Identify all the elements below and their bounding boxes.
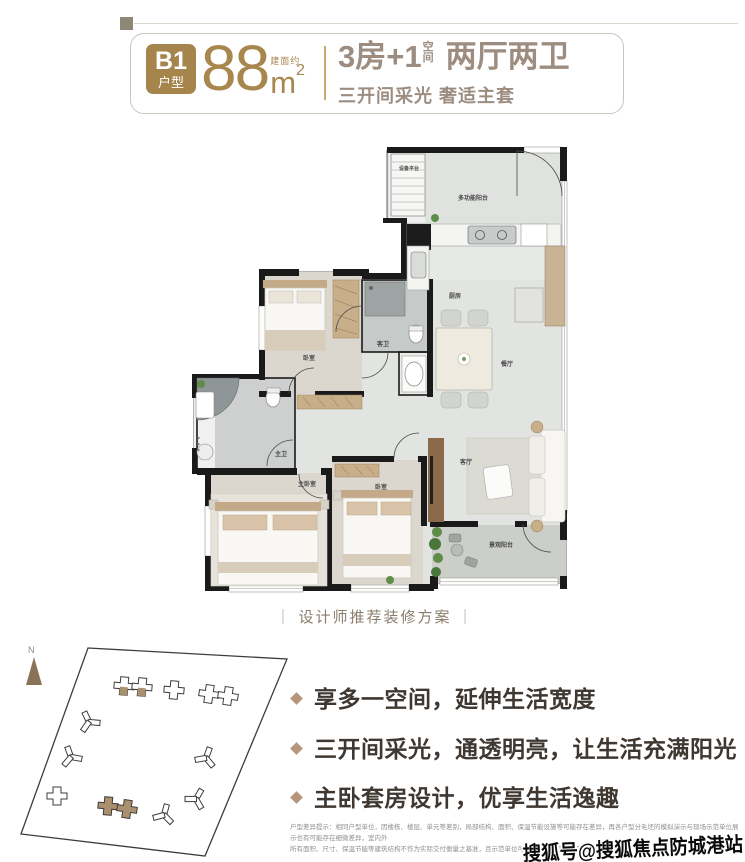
area-group: 88 建面约 m 2	[201, 36, 305, 100]
subheadline: 三开间采光 奢适主套	[338, 82, 515, 108]
room-label: 卧室	[375, 483, 387, 491]
room-label: 厨房	[449, 292, 461, 300]
header-rule-line	[134, 23, 738, 24]
room-label: 多功能阳台	[458, 194, 488, 202]
headline: 3房+1 空 间 两厅两卫	[338, 41, 570, 72]
room-label: 景观阳台	[488, 541, 513, 549]
site-plan: N	[12, 638, 302, 862]
room-label: 主卧室	[298, 480, 316, 488]
room-label: 客卫	[376, 340, 389, 348]
unit-type-badge: B1 户型	[146, 44, 196, 94]
badge-label: 户型	[158, 76, 184, 89]
corner-square-ornament	[120, 17, 133, 30]
badge-code: B1	[155, 49, 187, 74]
compass-label: N	[28, 645, 35, 655]
site-boundary	[21, 648, 287, 856]
headline-part2: 两厅两卫	[446, 41, 570, 72]
headline-stack: 空 间	[423, 42, 434, 64]
feature-item: 享多一空间，延伸生活宽度	[290, 686, 737, 714]
equipment-platform	[391, 154, 425, 216]
room-label: 客厅	[459, 458, 472, 466]
header-divider	[324, 46, 326, 100]
diamond-bullet-icon	[290, 742, 303, 755]
feature-item: 三开间采光，通透明亮，让生活充满阳光	[290, 736, 737, 764]
room-label: 主卫	[275, 450, 287, 458]
room-label: 餐厅	[500, 360, 513, 368]
caption-text: 设计师推荐装修方案	[298, 609, 451, 626]
floor-plan: 设备平台 多功能阳台 厨房 客卫 餐厅 卧室 主卫 主卧室 卧室 客厅 景观阳台	[185, 138, 581, 598]
bed-top-bedroom	[263, 280, 327, 350]
feature-item: 主卧套房设计，优享生活逸趣	[290, 785, 737, 813]
diamond-bullet-icon	[290, 791, 303, 804]
area-value: 88	[201, 36, 268, 100]
plan-caption: ｜设计师推荐装修方案｜	[235, 606, 515, 627]
compass-arrow	[26, 657, 42, 685]
diamond-bullet-icon	[290, 692, 303, 705]
feature-text: 享多一空间，延伸生活宽度	[314, 686, 596, 714]
feature-text: 主卧套房设计，优享生活逸趣	[314, 785, 620, 813]
feature-text: 三开间采光，通透明亮，让生活充满阳光	[314, 736, 737, 764]
room-label: 卧室	[303, 354, 315, 362]
page: B1 户型 88 建面约 m 2 3房+1 空 间 两厅两卫 三开间采光 奢适主…	[0, 0, 745, 862]
feature-list: 享多一空间，延伸生活宽度 三开间采光，通透明亮，让生活充满阳光 主卧套房设计，优…	[290, 686, 737, 835]
bed-master-bedroom	[209, 494, 329, 586]
headline-part1: 3房+1	[338, 41, 422, 72]
area-unit-column: 建面约 m 2	[270, 57, 305, 98]
area-unit: m 2	[270, 67, 305, 98]
room-label: 设备平台	[399, 165, 419, 172]
bed-middle-bedroom	[333, 490, 413, 584]
